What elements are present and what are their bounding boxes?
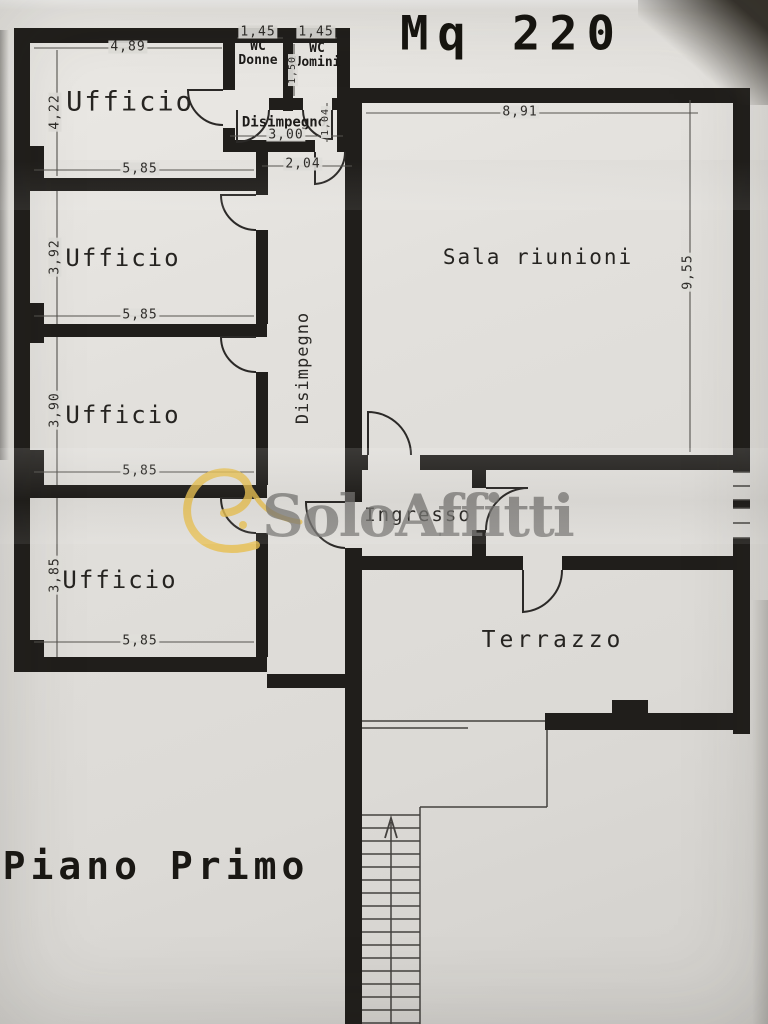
room-label-wc-donne: WC Donne (233, 40, 283, 67)
dim-ufficio4-height: 3,85 (49, 555, 62, 594)
plan-title: Mq 220 (400, 7, 624, 62)
dim-sala-right: 9,55 (682, 252, 695, 291)
dim-ufficio2-bottom: 5,85 (120, 309, 159, 322)
wc-uomini-line1: WC (293, 42, 341, 56)
dim-ufficio1-top: 4,89 (108, 41, 147, 54)
dim-corridor-top: 2,04 (283, 158, 322, 171)
room-label-ufficio-1: Ufficio (66, 87, 194, 118)
wc-donne-line2: Donne (233, 54, 283, 68)
dim-ufficio1-bottom: 5,85 (120, 163, 159, 176)
dim-ufficio2-height: 3,92 (49, 237, 62, 276)
watermark-soloaffitti: SoloAffitti (262, 487, 592, 545)
dim-ufficio3-bottom: 5,85 (120, 465, 159, 478)
room-label-terrazzo: Terrazzo (482, 627, 625, 653)
floor-label: Piano Primo (3, 844, 310, 888)
wc-uomini-line2: Uomini (293, 56, 341, 70)
dim-ufficio1-height: 4,22 (49, 92, 62, 131)
room-label-ufficio-4: Ufficio (62, 566, 177, 594)
door-terrazzo (523, 570, 562, 612)
dim-sala-top: 8,91 (500, 106, 539, 119)
floorplan-photo: Mq 220 Ufficio Ufficio Ufficio Ufficio W… (0, 0, 768, 1024)
stairs (362, 721, 547, 1024)
door-ufficio3 (221, 337, 256, 372)
dim-hall-door: 1,04 (321, 106, 331, 138)
dim-ufficio3-height: 3,90 (49, 390, 62, 429)
dim-wc-depth: 1,50 (288, 54, 298, 86)
dim-ufficio4-bottom: 5,85 (120, 635, 159, 648)
room-label-ufficio-3: Ufficio (65, 401, 180, 429)
dim-wc-uomini-width: 1,45 (296, 26, 335, 39)
dim-hall-width: 3,00 (266, 129, 305, 142)
room-label-wc-uomini: WC Uomini (293, 42, 341, 69)
door-sala (368, 412, 411, 455)
door-ufficio2 (221, 195, 256, 230)
room-label-disimpegno-corridor: Disimpegno (293, 312, 313, 424)
room-label-ufficio-2: Ufficio (65, 244, 180, 272)
room-label-sala-riunioni: Sala riunioni (443, 245, 633, 269)
dim-wc-donne-width: 1,45 (238, 26, 277, 39)
wc-donne-line1: WC (233, 40, 283, 54)
landing-outline (362, 721, 547, 815)
